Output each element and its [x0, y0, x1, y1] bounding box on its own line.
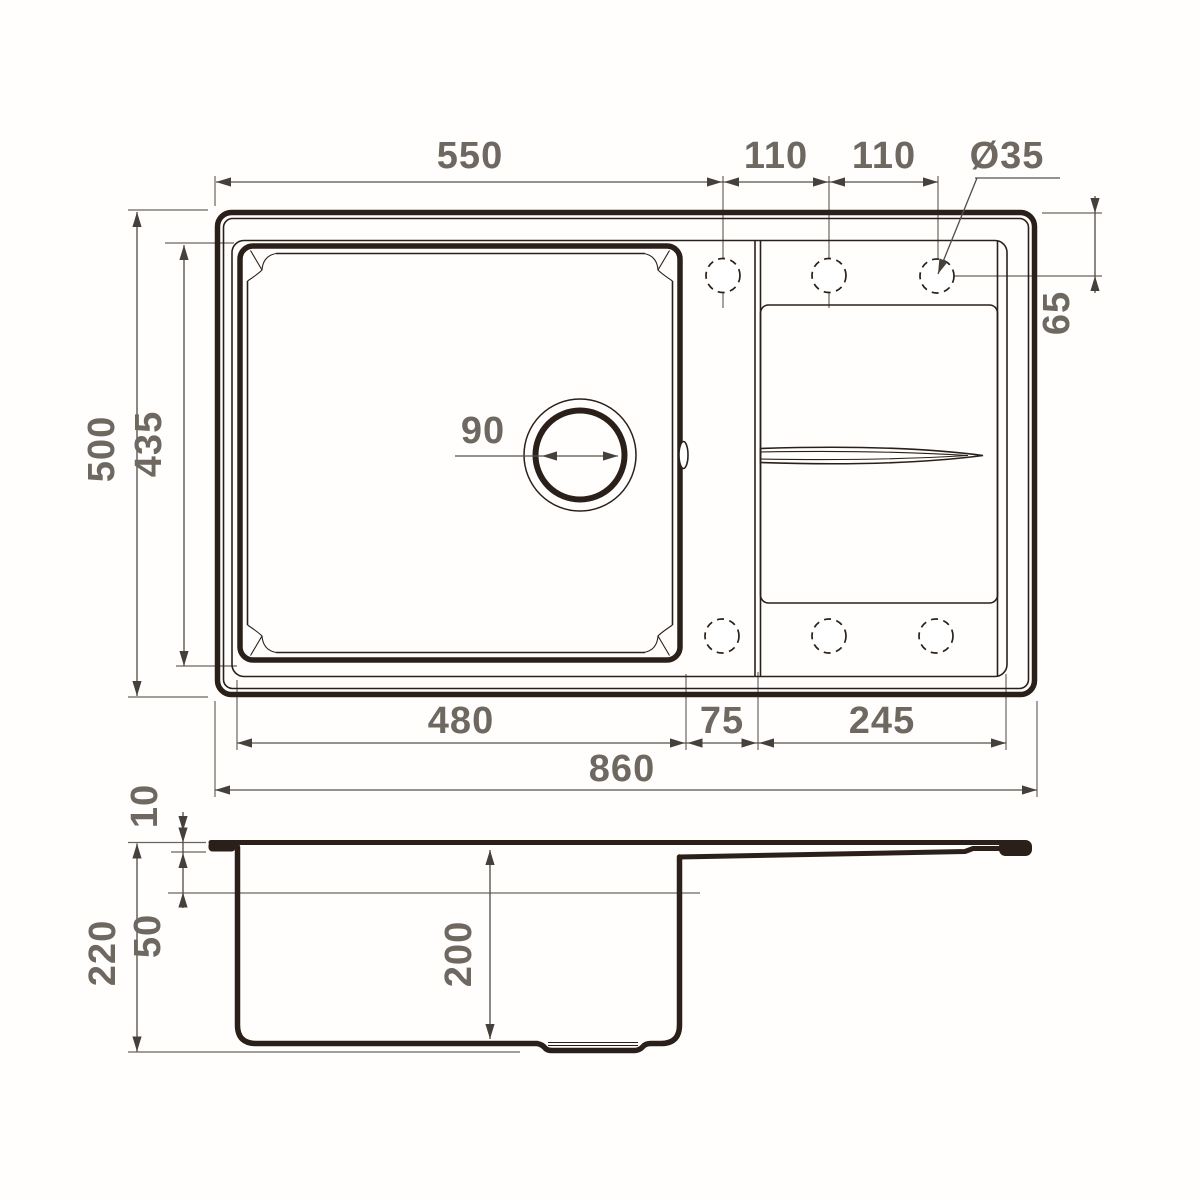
dim-label-480: 480: [428, 700, 494, 742]
drainboard-deck-outline: [761, 305, 998, 603]
bowl-corner-creases: [248, 251, 673, 656]
dim-label-435: 435: [128, 411, 170, 477]
dim-label-110-right: 110: [852, 135, 916, 177]
faucet-hole: [919, 619, 953, 653]
dim-label-110-left: 110: [744, 135, 808, 177]
dim-label-200: 200: [438, 921, 480, 987]
dim-label-860: 860: [589, 748, 655, 790]
dim-label-50: 50: [127, 914, 169, 958]
faucet-hole: [706, 259, 740, 293]
dim-label-10: 10: [124, 784, 166, 828]
faucet-hole: [920, 259, 954, 293]
faucet-holes: [705, 259, 954, 654]
bowl: [240, 246, 688, 660]
drain-flange-circle: [524, 399, 636, 511]
dim-label-90: 90: [461, 410, 505, 452]
dim-label-550: 550: [437, 135, 503, 177]
side-profile: [209, 840, 1033, 1051]
side-view: 10 50 220 200: [82, 784, 1032, 1052]
dim-label-75: 75: [700, 700, 744, 742]
faucet-hole: [812, 259, 846, 293]
technical-drawing-canvas: 550 110 110 Ø35 500 435 65 90 480 75 245…: [0, 0, 1200, 1200]
dim-label-hole-diameter: Ø35: [970, 135, 1045, 177]
dim-label-500: 500: [81, 416, 123, 482]
top-view: 550 110 110 Ø35 500 435 65 90 480 75 245…: [81, 135, 1102, 797]
side-view-labels: 10 50 220 200: [82, 784, 480, 987]
dim-label-65: 65: [1036, 291, 1078, 335]
drainboard: [755, 241, 998, 676]
hole-diameter-leader: [938, 178, 1060, 274]
dim-label-220: 220: [82, 920, 124, 986]
sink-dimension-drawing: 550 110 110 Ø35 500 435 65 90 480 75 245…: [0, 0, 1200, 1200]
top-view-arrowheads: [132, 177, 1099, 794]
drainboard-groove-outer: [761, 447, 984, 463]
dim-label-245: 245: [849, 700, 915, 742]
faucet-hole: [812, 619, 846, 653]
drainboard-section-line: [680, 849, 1005, 858]
side-view-extension-lines: [128, 843, 700, 1053]
overflow-slot: [679, 442, 688, 469]
faucet-hole: [705, 619, 739, 653]
bowl-outer-edge: [240, 246, 680, 660]
drainboard-groove-inner: [761, 451, 969, 459]
bowl-inner-edge: [248, 254, 673, 653]
